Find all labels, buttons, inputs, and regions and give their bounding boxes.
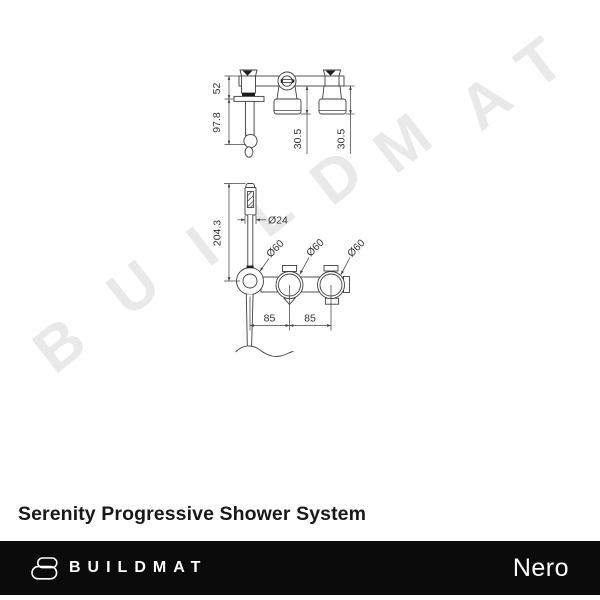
dim-30-5-right: 30.5	[336, 129, 348, 150]
hose-break-line	[236, 346, 294, 357]
holder-post	[246, 101, 255, 135]
buildmat-icon	[31, 557, 58, 580]
dim-52: 52	[211, 83, 223, 95]
hand-shower	[245, 184, 256, 270]
nero-logo: Nero	[513, 554, 569, 583]
footer-bar: BUILDMAT Nero	[0, 541, 600, 595]
buildmat-wordmark: BUILDMAT	[69, 559, 207, 577]
dim-85-left: 85	[264, 313, 276, 325]
dim-d60-2: Ø60	[304, 237, 327, 260]
dim-204-3: 204.3	[212, 220, 224, 246]
dim-30-5-mid: 30.5	[292, 129, 304, 150]
holder-flange	[234, 96, 264, 101]
hose-nub	[245, 147, 253, 157]
front-view-dimensions: 204.3 Ø24 Ø60 Ø60 Ø60 85 85	[212, 184, 368, 331]
product-drawing-page: B U I L D M A T	[0, 0, 600, 600]
dim-d60-1: Ø60	[264, 238, 287, 261]
buildmat-logo: BUILDMAT	[31, 557, 207, 580]
dim-d60-3: Ø60	[345, 237, 368, 260]
holder-ball	[244, 134, 257, 147]
dim-d24: Ø24	[268, 215, 288, 227]
top-view: 52 97.8 30.5 30.5	[211, 70, 355, 157]
dim-97-8: 97.8	[211, 112, 223, 133]
dim-85-right: 85	[304, 313, 316, 325]
page-title: Serenity Progressive Shower System	[18, 503, 366, 526]
front-view: 204.3 Ø24 Ø60 Ø60 Ø60 85 85	[212, 184, 368, 357]
